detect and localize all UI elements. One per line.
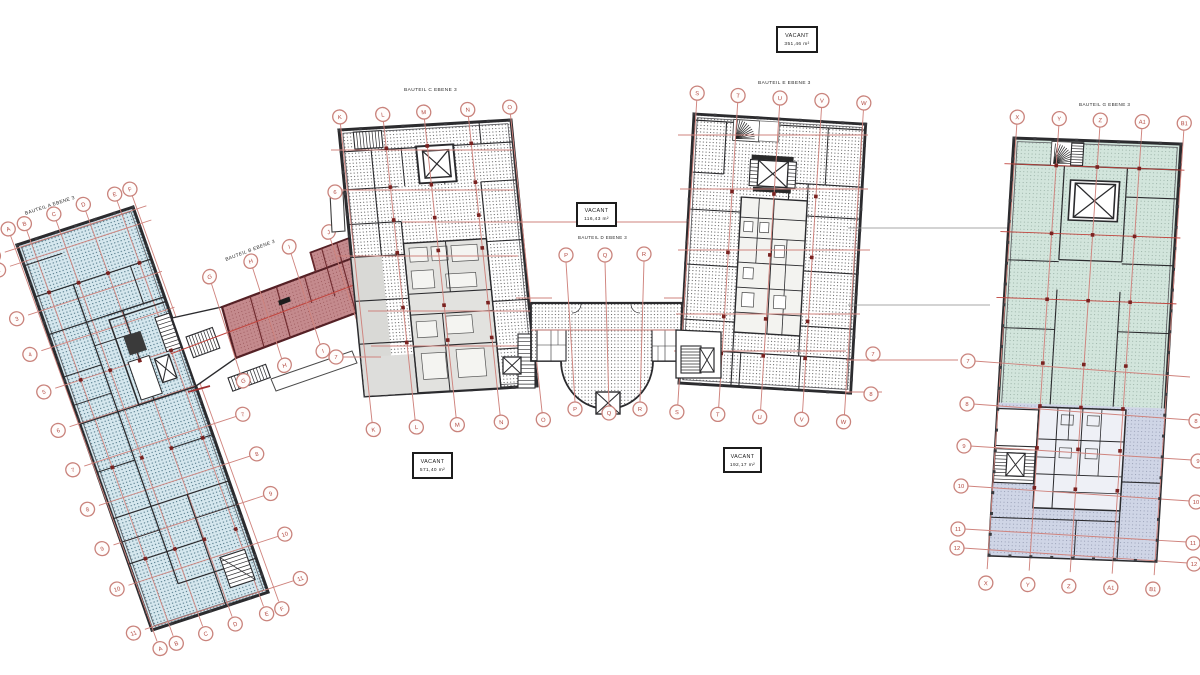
svg-text:10: 10 bbox=[958, 484, 964, 490]
svg-text:A1: A1 bbox=[1107, 586, 1114, 592]
svg-text:12: 12 bbox=[1191, 562, 1197, 568]
svg-text:116,43 m²: 116,43 m² bbox=[584, 216, 609, 222]
svg-text:351,46 m²: 351,46 m² bbox=[784, 41, 809, 47]
svg-text:7: 7 bbox=[871, 352, 874, 358]
svg-text:P: P bbox=[564, 253, 568, 259]
svg-text:12: 12 bbox=[954, 546, 960, 552]
svg-text:M: M bbox=[455, 423, 461, 429]
svg-text:9: 9 bbox=[1196, 459, 1199, 465]
svg-text:VACANT: VACANT bbox=[731, 454, 755, 460]
svg-text:M: M bbox=[421, 110, 427, 116]
svg-text:S: S bbox=[675, 410, 679, 416]
svg-text:R: R bbox=[642, 252, 646, 258]
svg-text:VACANT: VACANT bbox=[585, 208, 609, 214]
svg-text:Q: Q bbox=[607, 411, 612, 417]
svg-text:8: 8 bbox=[1194, 419, 1197, 425]
svg-text:V: V bbox=[820, 98, 824, 104]
svg-text:B1: B1 bbox=[1180, 121, 1187, 127]
svg-text:B1: B1 bbox=[1149, 587, 1156, 593]
svg-text:Y: Y bbox=[1026, 583, 1030, 589]
svg-text:Y: Y bbox=[1057, 117, 1061, 123]
svg-text:K: K bbox=[338, 115, 343, 121]
svg-text:BAUTEIL C EBENE 3: BAUTEIL C EBENE 3 bbox=[404, 87, 457, 93]
svg-text:VACANT: VACANT bbox=[785, 33, 809, 39]
svg-text:W: W bbox=[861, 101, 867, 107]
svg-text:U: U bbox=[778, 96, 783, 102]
svg-text:N: N bbox=[465, 108, 470, 114]
svg-text:571,40 m²: 571,40 m² bbox=[420, 467, 445, 473]
svg-text:BAUTEIL D EBENE 3: BAUTEIL D EBENE 3 bbox=[578, 235, 627, 240]
svg-text:X: X bbox=[984, 581, 988, 587]
svg-text:8: 8 bbox=[965, 402, 968, 408]
svg-text:192,17 m²: 192,17 m² bbox=[730, 462, 755, 468]
svg-text:S: S bbox=[695, 91, 699, 97]
svg-text:BAUTEIL G EBENE 3: BAUTEIL G EBENE 3 bbox=[1079, 102, 1130, 107]
svg-text:P: P bbox=[573, 407, 577, 413]
svg-text:9: 9 bbox=[962, 444, 965, 450]
svg-text:8: 8 bbox=[869, 392, 872, 398]
svg-text:7: 7 bbox=[334, 355, 337, 361]
svg-text:X: X bbox=[1015, 115, 1019, 121]
svg-text:U: U bbox=[757, 415, 762, 421]
svg-text:R: R bbox=[638, 407, 642, 413]
svg-text:VACANT: VACANT bbox=[421, 459, 445, 465]
svg-text:N: N bbox=[499, 420, 504, 426]
svg-text:7: 7 bbox=[966, 359, 969, 365]
svg-text:A1: A1 bbox=[1138, 120, 1145, 126]
svg-text:Q: Q bbox=[603, 253, 608, 259]
svg-text:BAUTEIL E EBENE 3: BAUTEIL E EBENE 3 bbox=[758, 80, 811, 86]
svg-text:6: 6 bbox=[333, 190, 336, 196]
svg-text:10: 10 bbox=[1193, 500, 1199, 506]
svg-text:W: W bbox=[841, 420, 847, 426]
svg-text:11: 11 bbox=[1190, 541, 1196, 547]
svg-text:11: 11 bbox=[955, 527, 961, 533]
svg-text:K: K bbox=[371, 427, 376, 433]
svg-text:V: V bbox=[799, 417, 803, 423]
